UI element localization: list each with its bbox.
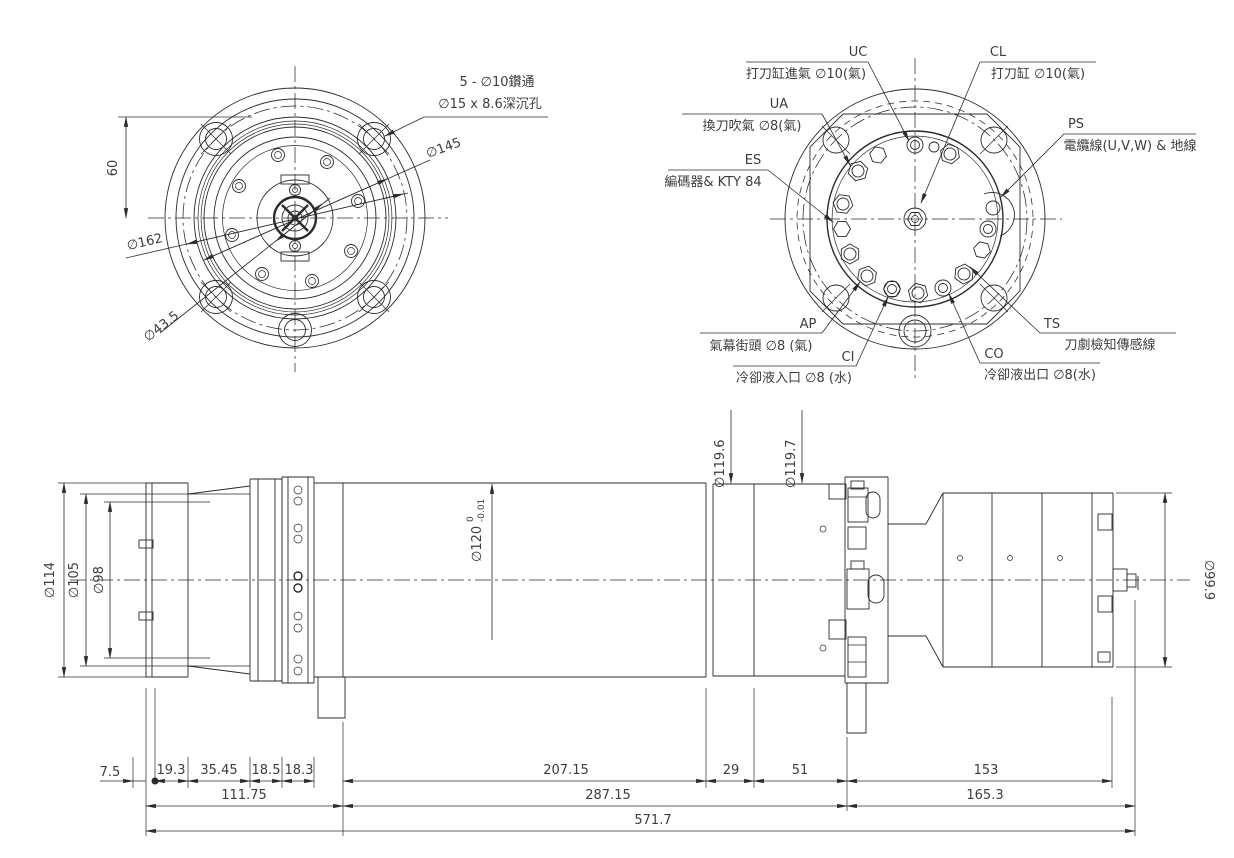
dim-row-3: 571.7 (146, 813, 1135, 831)
dim-60-label: 60 (106, 160, 121, 177)
dim-145: ∅145 (204, 135, 463, 260)
dim-dia-119-6: ∅119.6 (713, 410, 731, 488)
port-desc: 氣幕街頭 ∅8 (氣) (709, 339, 812, 354)
dim-43-5-label: ∅43.5 (141, 309, 182, 346)
front-view: 60 ∅162 ∅145 ∅43.5 5 - ∅10鑽通 ∅15 x 8.6深沉… (106, 66, 548, 372)
port-desc: 編碼器& KTY 84 (664, 174, 761, 190)
dim-row-2: 111.75 287.15 165.3 (146, 788, 1135, 806)
dim-label: 35.45 (200, 763, 237, 778)
cad-drawing: 60 ∅162 ∅145 ∅43.5 5 - ∅10鑽通 ∅15 x 8.6深沉… (0, 0, 1234, 854)
drawing-sheet: 60 ∅162 ∅145 ∅43.5 5 - ∅10鑽通 ∅15 x 8.6深沉… (0, 0, 1234, 854)
cable-glands (847, 481, 884, 677)
screw-hole (358, 123, 391, 156)
port-label-ps: PS 電纜線(U,V,W) & 地線 (1001, 117, 1197, 197)
dim-label: ∅105 (67, 562, 82, 598)
dim-label: ∅120 (470, 526, 485, 562)
port-desc: 電纜線(U,V,W) & 地線 (1063, 138, 1196, 154)
dim-label: 111.75 (221, 788, 267, 803)
port-label-ua: UA 換刀吹氣 ∅8(氣) (682, 97, 850, 165)
dim-label: 29 (723, 763, 740, 778)
port-code: CL (990, 45, 1007, 60)
port-desc: 換刀吹氣 ∅8(氣) (703, 119, 802, 134)
dim-label: 287.15 (585, 788, 631, 803)
dim-label: ∅114 (43, 562, 58, 598)
dim-tol-lower: -0.01 (477, 499, 487, 522)
dim-label: ∅99.9 (1201, 560, 1216, 600)
port-fittings (832, 137, 1015, 304)
port-desc: 冷卻液入口 ∅8 (水) (736, 371, 852, 386)
dim-dia-98: ∅98 (92, 502, 152, 658)
dim-43-5: ∅43.5 (141, 198, 330, 345)
screw-hole (822, 284, 850, 312)
port-code: UA (770, 97, 789, 112)
dim-label: 19.3 (157, 763, 186, 778)
side-view-outline (139, 477, 1138, 733)
port-code: AP (800, 317, 817, 332)
side-view: ∅114 ∅105 ∅98 ∅119.6 ∅119.7 ∅120 0 -0.01 (43, 410, 1216, 836)
port-desc: 刀劇檢知傳感線 (1064, 337, 1155, 353)
counterbore-note-line2: ∅15 x 8.6深沉孔 (438, 97, 542, 112)
rear-view: UC 打刀缸進氣 ∅10(氣) CL 打刀缸 ∅10(氣) UA 換刀吹氣 ∅8… (664, 45, 1196, 386)
dim-label: 18.5 (252, 763, 281, 778)
cable-boss (986, 201, 1000, 215)
dim-label: 165.3 (966, 788, 1003, 803)
port-code: CO (984, 347, 1003, 362)
counterbore-note-line1: 5 - ∅10鑽通 (459, 74, 534, 90)
dim-60: 60 (106, 117, 252, 218)
port-code: UC (849, 45, 868, 60)
port-desc: 打刀缸 ∅10(氣) (991, 66, 1085, 82)
dim-145-label: ∅145 (424, 135, 463, 161)
port-code: CI (842, 350, 855, 365)
dim-label: 153 (974, 763, 999, 778)
dim-row-1: 7.5 19.3 35.45 18.5 18.3 207.15 29 51 15… (100, 763, 1112, 781)
screw-hole (980, 284, 1008, 312)
dim-label: 51 (792, 763, 809, 778)
screw-hole (980, 126, 1008, 154)
counterbore-note: 5 - ∅10鑽通 ∅15 x 8.6深沉孔 (385, 74, 548, 136)
flange-bolt-holes (294, 486, 302, 675)
dim-label: ∅119.7 (784, 439, 799, 488)
port-code: ES (745, 153, 761, 168)
dim-label: 18.3 (285, 763, 314, 778)
dim-dia-119-7: ∅119.7 (784, 410, 802, 488)
dim-label: 7.5 (100, 765, 121, 780)
dim-dia-120: ∅120 0 -0.01 (466, 484, 492, 640)
dim-label: 207.15 (543, 763, 589, 778)
port-code: TS (1043, 317, 1060, 332)
dim-label: 571.7 (634, 813, 671, 828)
dim-tol-upper: 0 (466, 516, 476, 522)
dim-label: ∅119.6 (713, 439, 728, 488)
port-desc: 冷卻液出口 ∅8(水) (984, 368, 1096, 383)
screw-hole (200, 123, 233, 156)
dim-label: ∅98 (92, 566, 107, 594)
port-code: PS (1068, 117, 1084, 132)
port-label-ap: AP 氣幕街頭 ∅8 (氣) (700, 282, 860, 354)
screw-hole (358, 281, 391, 314)
port-desc: 打刀缸進氣 ∅10(氣) (746, 66, 866, 82)
screw-hole (200, 281, 233, 314)
